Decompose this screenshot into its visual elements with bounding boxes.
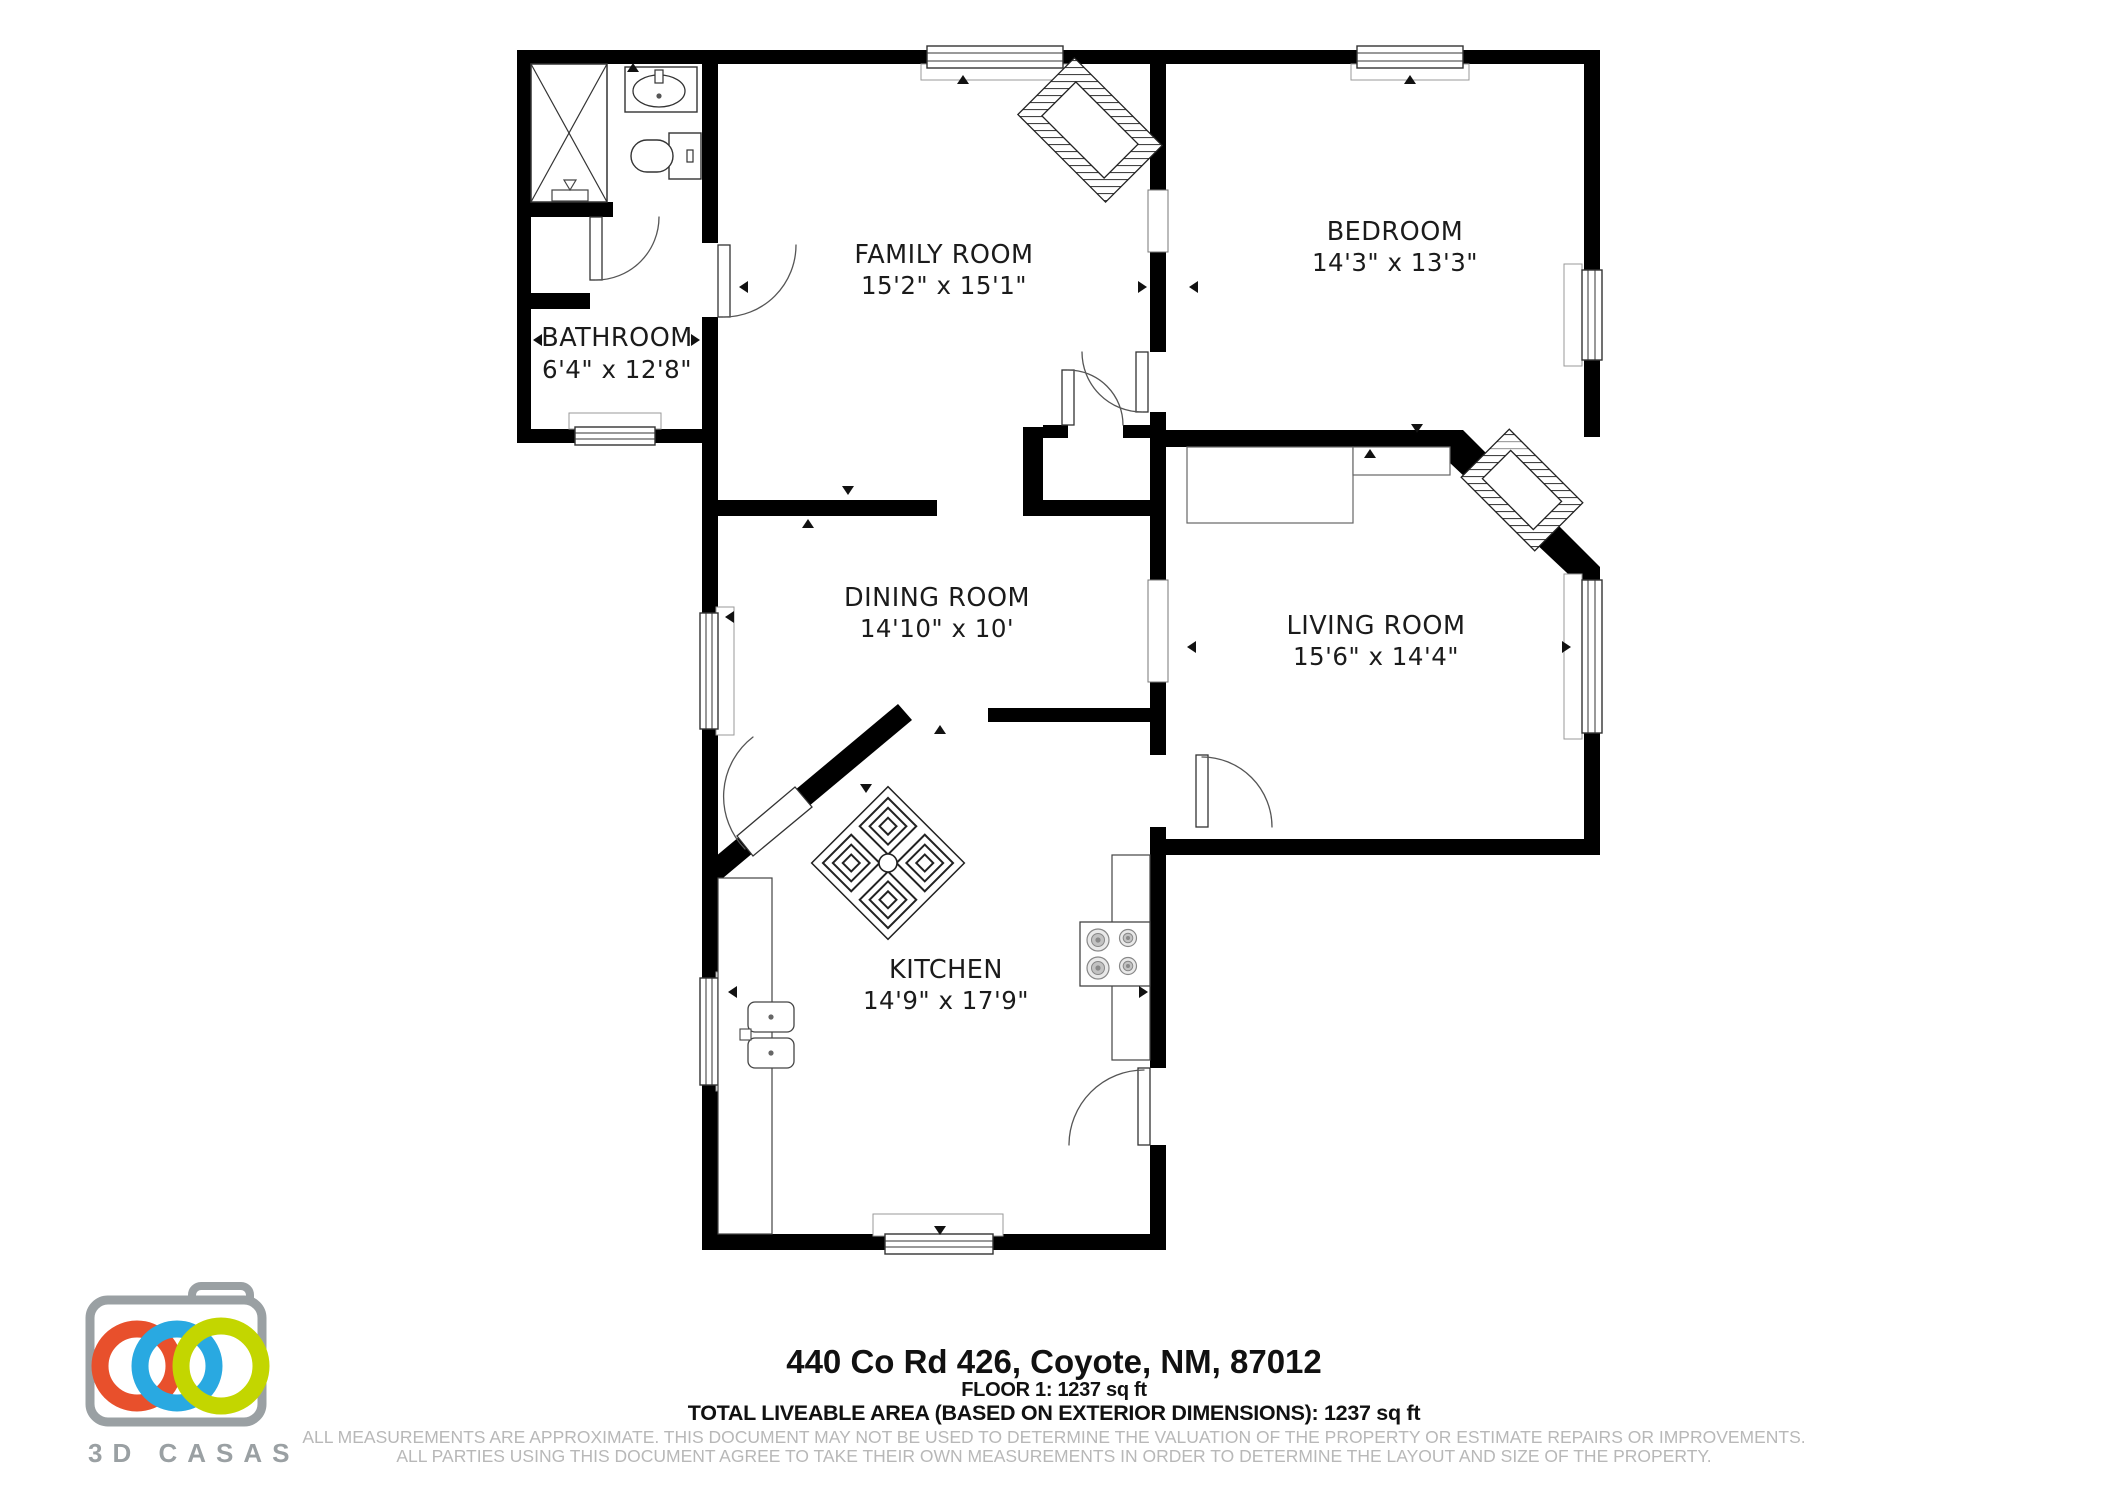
room-dims: 14'10" x 10' xyxy=(860,614,1014,643)
opening-cased-dining-living xyxy=(1148,580,1168,682)
room-name: DINING ROOM xyxy=(844,583,1030,613)
faucet xyxy=(740,1029,751,1040)
window-kitchen-bottom xyxy=(873,1214,1003,1254)
window-bedroom-right xyxy=(1564,264,1602,366)
window-family-top xyxy=(921,46,1069,80)
room-name: BATHROOM xyxy=(541,323,693,353)
opening-bedroom-door xyxy=(1148,352,1168,412)
disclaimer-line-2: ALL PARTIES USING THIS DOCUMENT AGREE TO… xyxy=(396,1446,1711,1466)
floor-area-line: FLOOR 1: 1237 sq ft xyxy=(961,1379,1147,1401)
bathroom-sink xyxy=(625,67,697,112)
page-background xyxy=(0,0,2109,1491)
room-dims: 15'2" x 15'1" xyxy=(861,271,1027,300)
wall-family-dining-a xyxy=(702,500,937,516)
room-dims: 15'6" x 14'4" xyxy=(1293,642,1459,671)
floor-plan-canvas: FAMILY ROOM 15'2" x 15'1" BEDROOM 14'3" … xyxy=(0,0,2109,1491)
wall-dining-kitchen xyxy=(988,708,1150,722)
window-bedroom-top xyxy=(1351,46,1469,80)
shower xyxy=(531,64,607,202)
logo-wordmark: 3D CASAS xyxy=(88,1438,299,1468)
room-dims: 14'9" x 17'9" xyxy=(863,986,1029,1015)
wall-living-bottom xyxy=(1166,839,1600,855)
floor-plan-page: FAMILY ROOM 15'2" x 15'1" BEDROOM 14'3" … xyxy=(0,0,2109,1491)
wall-bedroom-bottom xyxy=(1150,430,1433,447)
wall-family-dining-b xyxy=(1023,500,1166,516)
wall-bathroom-left xyxy=(517,50,531,443)
room-dims: 14'3" x 13'3" xyxy=(1312,248,1478,277)
window-dining-left xyxy=(700,607,734,735)
disclaimer-line-1: ALL MEASUREMENTS ARE APPROXIMATE. THIS D… xyxy=(302,1427,1805,1447)
room-name: FAMILY ROOM xyxy=(854,240,1033,270)
wall-exterior-right-upper xyxy=(1584,50,1600,437)
stove xyxy=(1080,922,1150,986)
room-name: BEDROOM xyxy=(1327,217,1464,247)
wall-shower-bottom xyxy=(517,202,613,217)
opening-kitchen-living-door xyxy=(1148,755,1168,827)
opening-hallcloset-door xyxy=(1068,423,1123,440)
opening-kitchen-exterior-door xyxy=(1148,1068,1168,1145)
total-area-line: TOTAL LIVEABLE AREA (BASED ON EXTERIOR D… xyxy=(688,1401,1421,1425)
wall-bathcloset-bottom xyxy=(517,293,590,309)
room-name: KITCHEN xyxy=(889,955,1003,985)
address-line: 440 Co Rd 426, Coyote, NM, 87012 xyxy=(786,1343,1322,1380)
window-living-right xyxy=(1564,574,1602,739)
wall-hallcloset-left xyxy=(1023,427,1043,500)
opening-cased-bedroom xyxy=(1148,190,1168,252)
window-bathroom-bottom xyxy=(569,413,661,445)
room-dims: 6'4" x 12'8" xyxy=(542,355,692,384)
room-name: LIVING ROOM xyxy=(1287,611,1466,641)
opening-bathroom-door xyxy=(700,243,720,317)
